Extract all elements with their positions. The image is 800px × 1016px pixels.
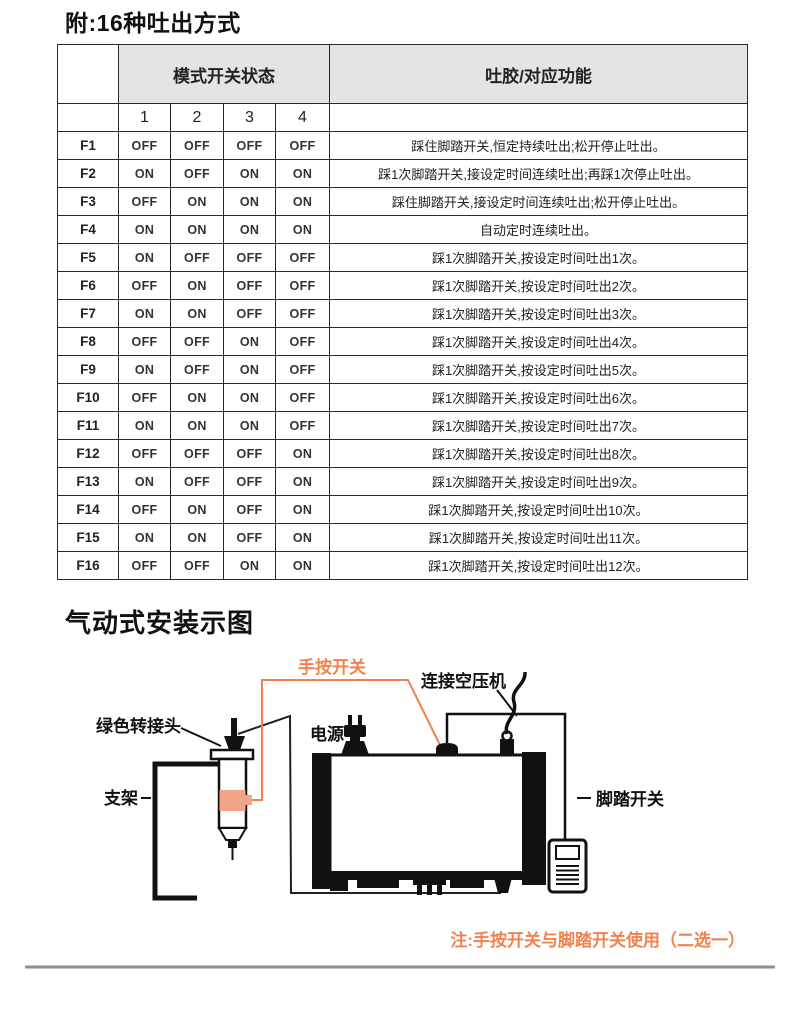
description-cell: 踩1次脚踏开关,接设定时间连续吐出;再踩1次停止吐出。 (330, 160, 748, 188)
table-row: F13 ON OFF OFF ON 踩1次脚踏开关,按设定时间吐出9次。 (58, 468, 748, 496)
switch4-cell: ON (276, 440, 330, 468)
mode-cell: F14 (58, 496, 119, 524)
switch3-cell: ON (224, 552, 276, 580)
mode-cell: F10 (58, 384, 119, 412)
switch1-cell: OFF (119, 552, 171, 580)
switch3-cell: ON (224, 384, 276, 412)
mode-switch-group-header: 模式开关状态 (119, 45, 330, 104)
table-header-row-groups: 模式开关状态 吐胶/对应功能 (58, 45, 748, 104)
table-row: F11 ON ON ON OFF 踩1次脚踏开关,按设定时间吐出7次。 (58, 412, 748, 440)
bottom-air-connector (493, 874, 513, 893)
switch4-cell: ON (276, 524, 330, 552)
stand-label: 支架 (104, 788, 138, 808)
switch1-cell: ON (119, 412, 171, 440)
green-adapter-pointer (181, 728, 221, 746)
mode-cell: F15 (58, 524, 119, 552)
switch-col-header-2: 2 (171, 104, 224, 132)
switch2-cell: OFF (171, 356, 224, 384)
switch4-cell: ON (276, 188, 330, 216)
description-cell: 自动定时连续吐出。 (330, 216, 748, 244)
header-blank-cell (330, 104, 748, 132)
power-label: 电源 (310, 724, 344, 744)
switch-col-header-1: 1 (119, 104, 171, 132)
description-cell: 踩1次脚踏开关,按设定时间吐出6次。 (330, 384, 748, 412)
mode-cell: F9 (58, 356, 119, 384)
switch2-cell: ON (171, 524, 224, 552)
description-cell: 踩1次脚踏开关,按设定时间吐出3次。 (330, 300, 748, 328)
mode-cell: F11 (58, 412, 119, 440)
mode-cell: F12 (58, 440, 119, 468)
switch3-cell: OFF (224, 440, 276, 468)
mode-cell: F3 (58, 188, 119, 216)
description-cell: 踩1次脚踏开关,按设定时间吐出9次。 (330, 468, 748, 496)
mode-cell: F7 (58, 300, 119, 328)
table-body: F1 OFF OFF OFF OFF 踩住脚踏开关,恒定持续吐出;松开停止吐出。… (58, 132, 748, 580)
header-blank-cell (58, 104, 119, 132)
switch3-cell: OFF (224, 132, 276, 160)
switch3-cell: ON (224, 160, 276, 188)
switch4-cell: ON (276, 496, 330, 524)
installation-diagram: 手按开关 连接空压机 绿色转接头 电源 支架 脚踏开关 注:手按开关与脚踏开关使… (0, 642, 800, 988)
switch4-cell: ON (276, 160, 330, 188)
switch2-cell: OFF (171, 468, 224, 496)
switch4-cell: ON (276, 552, 330, 580)
switch2-cell: ON (171, 216, 224, 244)
switch1-cell: ON (119, 300, 171, 328)
switch3-cell: OFF (224, 244, 276, 272)
switch-col-header-3: 3 (224, 104, 276, 132)
switch2-cell: ON (171, 272, 224, 300)
switch2-cell: ON (171, 188, 224, 216)
description-cell: 踩1次脚踏开关,按设定时间吐出4次。 (330, 328, 748, 356)
description-cell: 踩1次脚踏开关,按设定时间吐出11次。 (330, 524, 748, 552)
table-row: F4 ON ON ON ON 自动定时连续吐出。 (58, 216, 748, 244)
table-row: F14 OFF ON OFF ON 踩1次脚踏开关,按设定时间吐出10次。 (58, 496, 748, 524)
manual-page: 附:16种吐出方式 模式开关状态 吐胶/对应功能 1 2 3 4 F1 OFF (0, 0, 800, 1016)
table-row: F12 OFF OFF OFF ON 踩1次脚踏开关,按设定时间吐出8次。 (58, 440, 748, 468)
switch1-cell: ON (119, 356, 171, 384)
usage-note: 注:手按开关与脚踏开关使用（二选一） (450, 930, 745, 950)
table-row: F7 ON ON OFF OFF 踩1次脚踏开关,按设定时间吐出3次。 (58, 300, 748, 328)
green-adapter-label: 绿色转接头 (96, 716, 181, 736)
switch4-cell: OFF (276, 132, 330, 160)
switch3-cell: OFF (224, 272, 276, 300)
mode-cell: F1 (58, 132, 119, 160)
description-cell: 踩1次脚踏开关,按设定时间吐出8次。 (330, 440, 748, 468)
switch4-cell: OFF (276, 272, 330, 300)
description-cell: 踩住脚踏开关,接设定时间连续吐出;松开停止吐出。 (330, 188, 748, 216)
function-group-header: 吐胶/对应功能 (330, 45, 748, 104)
switch4-cell: OFF (276, 328, 330, 356)
description-cell: 踩1次脚踏开关,按设定时间吐出2次。 (330, 272, 748, 300)
description-cell: 踩1次脚踏开关,按设定时间吐出7次。 (330, 412, 748, 440)
table-row: F9 ON OFF ON OFF 踩1次脚踏开关,按设定时间吐出5次。 (58, 356, 748, 384)
foot-pedal-icon (549, 840, 586, 892)
switch3-cell: OFF (224, 468, 276, 496)
switch3-cell: ON (224, 412, 276, 440)
header-blank-cell (58, 45, 119, 104)
mode-cell: F5 (58, 244, 119, 272)
switch2-cell: ON (171, 300, 224, 328)
table-row: F16 OFF OFF ON ON 踩1次脚踏开关,按设定时间吐出12次。 (58, 552, 748, 580)
switch4-cell: OFF (276, 384, 330, 412)
switch2-cell: ON (171, 384, 224, 412)
switch2-cell: OFF (171, 328, 224, 356)
table-row: F10 OFF ON ON OFF 踩1次脚踏开关,按设定时间吐出6次。 (58, 384, 748, 412)
switch1-cell: OFF (119, 440, 171, 468)
switch4-cell: OFF (276, 244, 330, 272)
mode-cell: F13 (58, 468, 119, 496)
switch3-cell: OFF (224, 524, 276, 552)
air-hose-icon (506, 672, 525, 734)
switch2-cell: OFF (171, 552, 224, 580)
power-plug-icon (341, 715, 369, 755)
switch3-cell: ON (224, 328, 276, 356)
switch1-cell: OFF (119, 272, 171, 300)
hand-switch-block (220, 790, 246, 811)
hand-switch-label: 手按开关 (298, 657, 366, 677)
switch1-cell: OFF (119, 496, 171, 524)
switch4-cell: OFF (276, 412, 330, 440)
switch1-cell: ON (119, 216, 171, 244)
switch2-cell: OFF (171, 132, 224, 160)
switch1-cell: ON (119, 468, 171, 496)
description-cell: 踩住脚踏开关,恒定持续吐出;松开停止吐出。 (330, 132, 748, 160)
mode-cell: F8 (58, 328, 119, 356)
switch4-cell: ON (276, 468, 330, 496)
switch2-cell: ON (171, 412, 224, 440)
switch2-cell: ON (171, 496, 224, 524)
switch3-cell: OFF (224, 496, 276, 524)
table-row: F15 ON ON OFF ON 踩1次脚踏开关,按设定时间吐出11次。 (58, 524, 748, 552)
dispense-modes-table: 模式开关状态 吐胶/对应功能 1 2 3 4 F1 OFF OFF OFF OF… (57, 44, 748, 580)
switch3-cell: ON (224, 188, 276, 216)
switch1-cell: OFF (119, 384, 171, 412)
table-row: F1 OFF OFF OFF OFF 踩住脚踏开关,恒定持续吐出;松开停止吐出。 (58, 132, 748, 160)
switch2-cell: OFF (171, 160, 224, 188)
table-row: F3 OFF ON ON ON 踩住脚踏开关,接设定时间连续吐出;松开停止吐出。 (58, 188, 748, 216)
switch1-cell: ON (119, 244, 171, 272)
pneumatic-diagram-drawing: 手按开关 连接空压机 绿色转接头 电源 支架 脚踏开关 注:手按开关与脚踏开关使… (0, 642, 800, 988)
mode-cell: F4 (58, 216, 119, 244)
switch1-cell: OFF (119, 328, 171, 356)
table-row: F2 ON OFF ON ON 踩1次脚踏开关,接设定时间连续吐出;再踩1次停止… (58, 160, 748, 188)
page-title: 附:16种吐出方式 (65, 8, 800, 38)
switch3-cell: ON (224, 216, 276, 244)
table-row: F8 OFF OFF ON OFF 踩1次脚踏开关,按设定时间吐出4次。 (58, 328, 748, 356)
switch4-cell: OFF (276, 356, 330, 384)
table-header-row-numbers: 1 2 3 4 (58, 104, 748, 132)
description-cell: 踩1次脚踏开关,按设定时间吐出5次。 (330, 356, 748, 384)
dispenser-machine-icon (312, 732, 546, 896)
diagram-section-title: 气动式安装示图 (65, 606, 800, 640)
switch3-cell: OFF (224, 300, 276, 328)
switch2-cell: OFF (171, 440, 224, 468)
switch1-cell: ON (119, 160, 171, 188)
description-cell: 踩1次脚踏开关,按设定时间吐出10次。 (330, 496, 748, 524)
mode-cell: F16 (58, 552, 119, 580)
switch4-cell: ON (276, 216, 330, 244)
switch4-cell: OFF (276, 300, 330, 328)
switch1-cell: OFF (119, 188, 171, 216)
switch1-cell: OFF (119, 132, 171, 160)
table-row: F5 ON OFF OFF OFF 踩1次脚踏开关,按设定时间吐出1次。 (58, 244, 748, 272)
switch3-cell: ON (224, 356, 276, 384)
mode-cell: F2 (58, 160, 119, 188)
switch2-cell: OFF (171, 244, 224, 272)
description-cell: 踩1次脚踏开关,按设定时间吐出1次。 (330, 244, 748, 272)
description-cell: 踩1次脚踏开关,按设定时间吐出12次。 (330, 552, 748, 580)
table-row: F6 OFF ON OFF OFF 踩1次脚踏开关,按设定时间吐出2次。 (58, 272, 748, 300)
foot-switch-label: 脚踏开关 (596, 789, 664, 809)
switch-col-header-4: 4 (276, 104, 330, 132)
syringe-icon (211, 718, 253, 860)
switch1-cell: ON (119, 524, 171, 552)
mode-cell: F6 (58, 272, 119, 300)
compressor-label: 连接空压机 (421, 671, 506, 691)
